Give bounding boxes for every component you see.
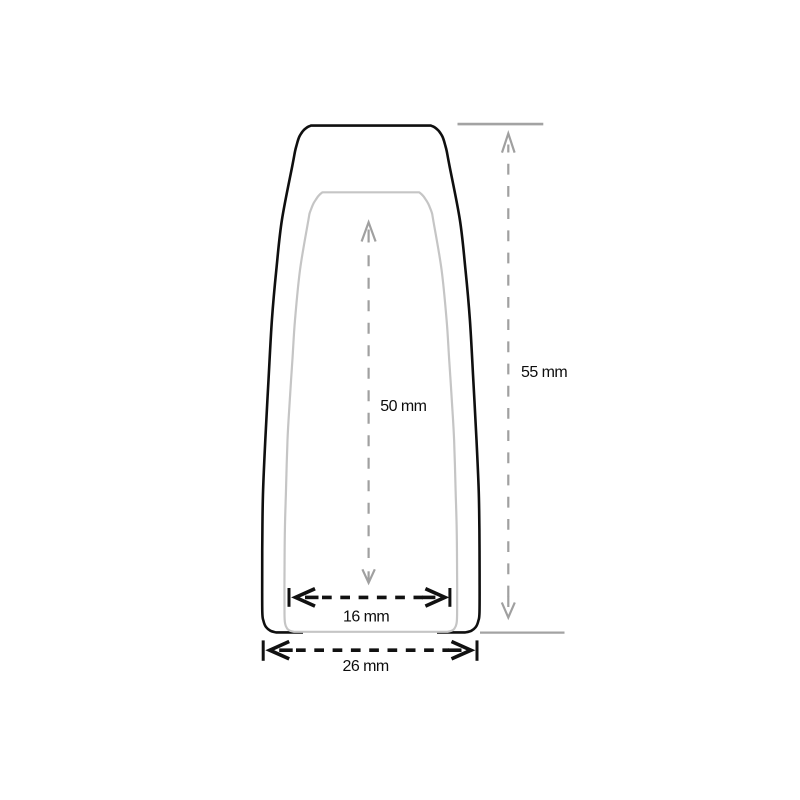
svg-text:26 mm: 26 mm [343,658,389,675]
svg-text:50 mm: 50 mm [380,398,426,415]
svg-text:55 mm: 55 mm [521,364,567,381]
svg-text:16 mm: 16 mm [343,608,389,625]
